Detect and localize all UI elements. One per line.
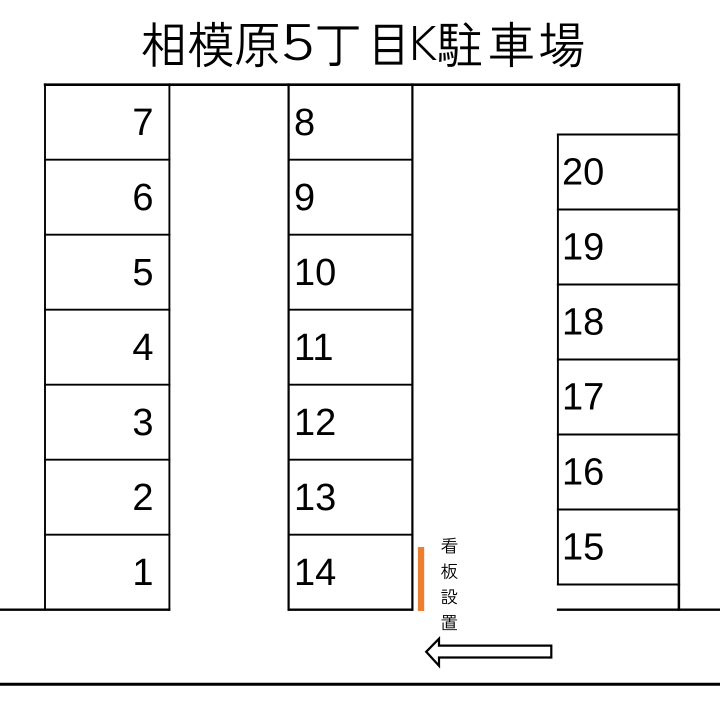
svg-text:17: 17 [562, 377, 604, 419]
svg-text:20: 20 [562, 152, 604, 194]
svg-text:11: 11 [294, 327, 333, 369]
svg-text:10: 10 [294, 252, 336, 294]
svg-text:18: 18 [562, 302, 604, 344]
svg-text:9: 9 [294, 177, 315, 219]
svg-text:13: 13 [294, 477, 336, 519]
svg-text:16: 16 [562, 452, 604, 494]
svg-text:12: 12 [294, 402, 336, 444]
svg-text:4: 4 [132, 327, 153, 369]
svg-text:19: 19 [562, 227, 604, 269]
svg-text:14: 14 [294, 552, 336, 594]
svg-text:5: 5 [132, 252, 153, 294]
svg-text:1: 1 [132, 552, 153, 594]
svg-text:8: 8 [294, 102, 315, 144]
svg-text:6: 6 [132, 177, 153, 219]
svg-text:15: 15 [562, 527, 604, 569]
svg-text:7: 7 [132, 102, 153, 144]
svg-text:3: 3 [132, 402, 153, 444]
svg-text:2: 2 [132, 477, 153, 519]
